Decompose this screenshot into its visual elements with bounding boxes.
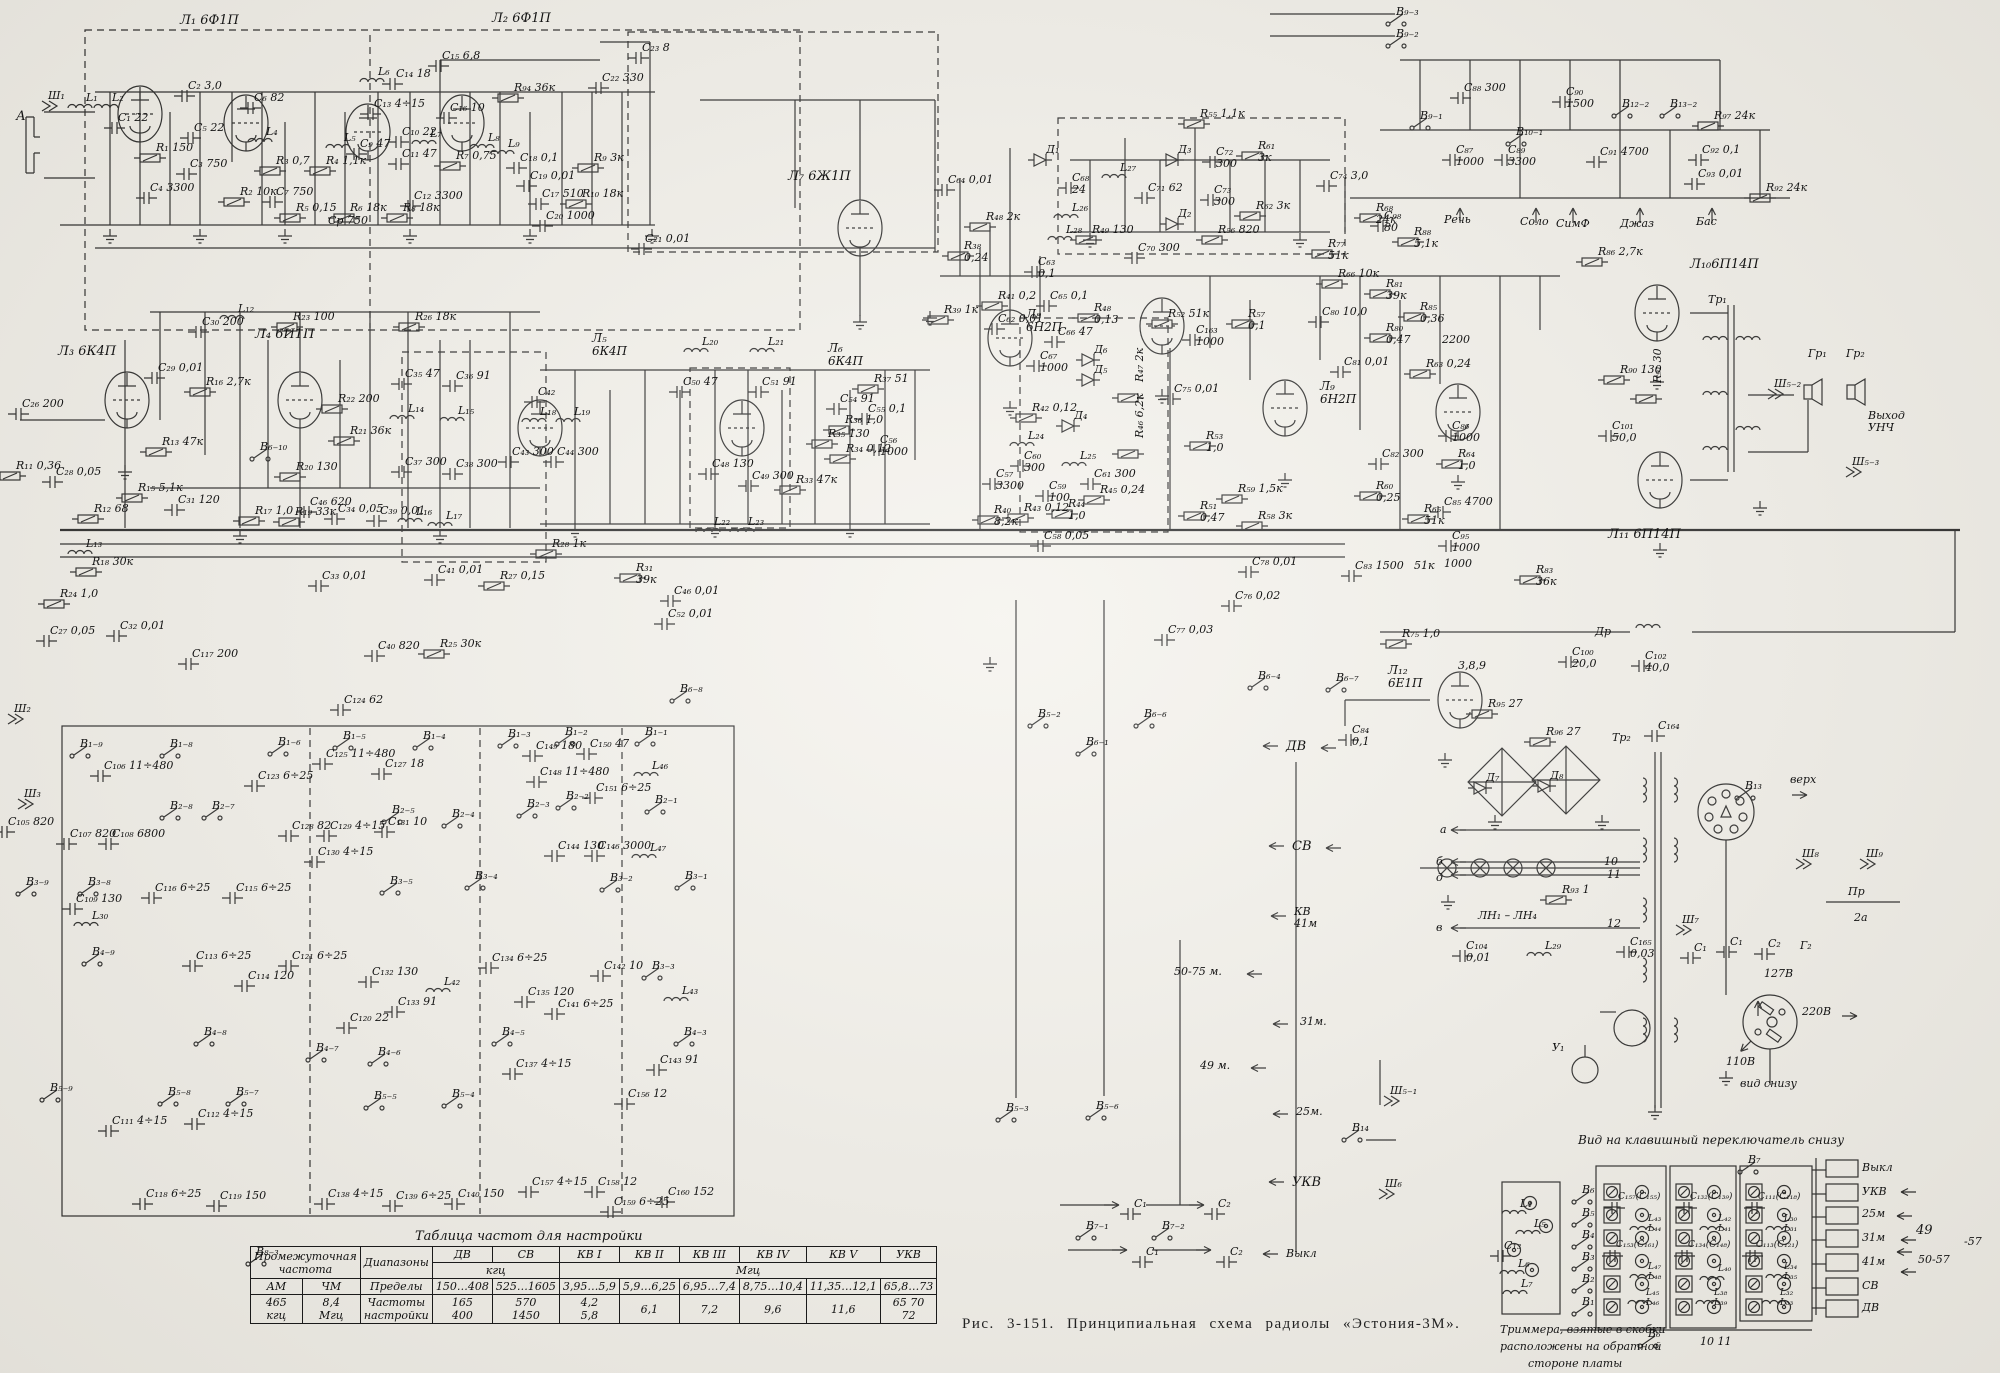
component-label: C₇ 750	[276, 186, 313, 198]
component-label: ДВ	[1862, 1302, 1879, 1314]
component-label: 11	[1607, 869, 1621, 881]
component-label: R₃₅ 130	[828, 428, 870, 440]
component-label: 2200	[1442, 334, 1470, 346]
component-label: 41м	[1862, 1256, 1885, 1268]
component-label: 10	[1604, 856, 1618, 868]
component-label: 3,8,9	[1458, 660, 1486, 672]
component-label: В₁₋₄	[423, 730, 446, 742]
component-label: C₃₇ 300	[405, 456, 447, 468]
component-label: R₂ 10к	[240, 186, 277, 198]
component-label: C₁₂₉ 4÷15	[330, 820, 385, 832]
component-label: В₂₋₄	[452, 808, 475, 820]
component-label: C₇₄ 3,0	[1330, 170, 1368, 182]
component-label: Ш₂	[14, 703, 31, 715]
band-col: ДВ	[432, 1247, 492, 1263]
component-label: C₈₂ 300	[1382, 448, 1424, 460]
component-label: Джаз	[1620, 218, 1654, 230]
component-label: L₂₄	[1028, 430, 1044, 442]
component-label: C₁₃	[1504, 1240, 1521, 1252]
component-label: Д₃	[1178, 144, 1191, 156]
component-label: C₂ 3,0	[188, 80, 222, 92]
component-label: C₂₆ 200	[22, 398, 64, 410]
component-label: C₁₂₀ 22	[350, 1012, 389, 1024]
component-label: C₁₁₄ 120	[248, 970, 294, 982]
component-label: R₄₀ 8,2к	[994, 504, 1018, 529]
component-label: Л₇ 6Ж1П	[788, 170, 851, 185]
component-label: R₆₂ 3к	[1256, 200, 1290, 212]
component-label: L₄	[1520, 1198, 1532, 1210]
band-col: КВ IV	[739, 1247, 806, 1263]
component-label: С₂	[1230, 1246, 1243, 1258]
component-label: В₉₋₂	[1396, 28, 1419, 40]
component-label: В₆₋₈	[680, 683, 703, 695]
component-label: В₃₋₄	[475, 870, 498, 882]
component-label: L₄₅ L₄₆	[1646, 1288, 1659, 1308]
component-label: С₁	[1694, 942, 1707, 954]
component-label: C₅ 22	[194, 122, 224, 134]
component-label: R₈₅ 0,36	[1420, 301, 1445, 326]
component-label: 31м	[1862, 1232, 1885, 1244]
component-label: R₆₃ 0,24	[1426, 358, 1471, 370]
component-label: L₁₃	[86, 538, 102, 550]
component-label: C₁₃₂(C₁₃₉)	[1690, 1192, 1732, 1202]
component-label: L₂₉	[1545, 940, 1561, 952]
component-label: L₄₃ L₄₄	[1648, 1214, 1661, 1234]
component-label: R₉₄ 36к	[514, 82, 555, 94]
component-label: R₁₀ 18к	[582, 188, 623, 200]
component-label: C₄₂	[538, 386, 555, 398]
component-label: в	[1436, 922, 1442, 934]
component-label: R₉ 3к	[594, 152, 624, 164]
component-label: R₆₆ 10к	[1338, 268, 1379, 280]
component-label: C₁₃ 4÷15	[374, 98, 425, 110]
component-label: В₁₋₂	[565, 726, 588, 738]
component-label: C₁₂₃ 6÷25	[258, 770, 313, 782]
band-col: КВ V	[806, 1247, 880, 1263]
component-label: C₁₃₃ 91	[398, 996, 437, 1008]
component-label: В₁₋₆	[278, 736, 301, 748]
table-header-if: Промежуточная частота	[251, 1247, 361, 1279]
component-label: L₂	[112, 92, 124, 104]
component-label: C₁₅₁ 6÷25	[596, 782, 651, 794]
component-label: В₃₋₈	[88, 876, 111, 888]
tuning-cell: 65 70 72	[880, 1295, 937, 1324]
component-label: C₁₃₄ 6÷25	[492, 952, 547, 964]
component-label: R₁₇ 1,0	[255, 505, 293, 517]
component-label: C₁₄₂ 10	[604, 960, 643, 972]
component-label: L₂₂	[714, 516, 730, 528]
component-label: Л₅ 6К4П	[592, 332, 627, 359]
component-label: В₄₋₆	[378, 1046, 401, 1058]
component-label: В₁₂₋₂	[1622, 98, 1649, 110]
component-label: C₃₆ 91	[456, 370, 491, 382]
component-label: C₁₀₉ 130	[76, 893, 122, 905]
component-label: В₁	[1582, 1296, 1595, 1308]
component-label: R₂₆ 18к	[415, 311, 456, 323]
component-label: C₁₁ 47	[402, 148, 437, 160]
component-label: Л₁₀6П14П	[1690, 258, 1759, 273]
tuning-cell: 7,2	[679, 1295, 739, 1324]
component-label: C₁₂₇ 18	[385, 758, 424, 770]
component-label: R₃₉ 1к	[944, 304, 978, 316]
component-label: R₅₈ 3к	[1258, 510, 1292, 522]
component-label: C₆₂ 0,01	[998, 313, 1043, 325]
tuning-cell: 9,6	[739, 1295, 806, 1324]
component-label: В₉₋₃	[1396, 6, 1419, 18]
component-label: В₅	[1582, 1207, 1595, 1219]
component-label: С₂	[1768, 938, 1781, 950]
component-label: верх	[1790, 774, 1816, 786]
component-label: R₃₇ 51	[874, 373, 909, 385]
component-label: R₉₂ 24к	[1766, 182, 1807, 194]
component-label: C₆₄ 0,01	[948, 174, 993, 186]
component-label: C₉₃ 0,01	[1698, 168, 1743, 180]
component-label: Соло	[1520, 216, 1549, 228]
component-label: C₁₄₈ 11÷480	[540, 766, 609, 778]
component-label: R₅₁ 0,47	[1200, 500, 1225, 525]
component-label: В₁₀₋₁	[1516, 126, 1543, 138]
component-label: С₁	[1730, 936, 1743, 948]
component-label: В₄₋₈	[204, 1026, 227, 1038]
component-label: R₈₃ 36к	[1536, 564, 1557, 589]
component-label: R₈₀ 0,47	[1386, 322, 1411, 347]
component-label: L₃₄ L₃₅	[1784, 1262, 1797, 1282]
component-label: R₈₁ 39к	[1386, 278, 1407, 303]
component-label: Ш₈	[1802, 848, 1819, 860]
component-label: R₅ 0,15	[296, 202, 337, 214]
component-label: C₁₇ 510	[542, 188, 584, 200]
component-label: В₅₋₈	[168, 1086, 191, 1098]
component-label: L₄	[266, 126, 278, 138]
component-label: C₁₀₄ 0,01	[1466, 940, 1491, 965]
component-label: C₄₄ 300	[557, 446, 599, 458]
component-label: L₇	[430, 128, 442, 140]
component-label: R₅₆ 820	[1218, 224, 1260, 236]
component-label: R₄₄ 1,0	[1068, 498, 1086, 523]
component-label: В₃₋₁	[685, 870, 708, 882]
component-label: В₁₋₉	[80, 738, 103, 750]
component-label: C₁₁₅ 6÷25	[236, 882, 291, 894]
component-label: В₉₋₁	[1420, 110, 1443, 122]
component-label: R₅₃ 1,0	[1206, 430, 1224, 455]
component-label: C₅₅ 0,1	[868, 403, 906, 415]
component-label: C₁₀₁ 50,0	[1612, 420, 1637, 445]
component-label: Гр₂	[1846, 348, 1865, 360]
component-label: Таблица частот для настройки	[415, 1230, 643, 1245]
component-label: C₁₆₄	[1658, 720, 1680, 732]
component-label: C₅₁ 91	[762, 376, 797, 388]
component-label: C₇₁ 62	[1148, 182, 1183, 194]
component-label: 31м.	[1300, 1016, 1327, 1028]
component-label: Ш₁	[48, 90, 65, 102]
band-col: УКВ	[880, 1247, 937, 1263]
component-label: C₁₃₂ 130	[372, 966, 418, 978]
component-label: Вид на клавишный переключатель снизу	[1578, 1134, 1844, 1147]
component-label: C₁₀₂ 40,0	[1645, 650, 1670, 675]
component-label: C₁₀₀ 20,0	[1572, 646, 1597, 671]
tuning-cell: 165 400	[432, 1295, 492, 1324]
if-fm-value: 8,4 Мгц	[302, 1295, 360, 1324]
component-label: C₁₆₃ 1000	[1196, 324, 1224, 349]
component-label: C₆₁ 300	[1094, 468, 1136, 480]
component-label: C₁₅₈ 12	[598, 1176, 637, 1188]
component-label: L₂₃	[748, 516, 764, 528]
component-label: С₁	[1146, 1246, 1159, 1258]
component-label: L₆	[378, 66, 390, 78]
tuning-cell: 570 1450	[492, 1295, 559, 1324]
component-label: C₈₄ 0,1	[1352, 724, 1370, 749]
component-label: R₈ 18к	[403, 202, 440, 214]
table-header-bands: Диапазоны	[360, 1247, 432, 1279]
component-label: C₄₀ 820	[378, 640, 420, 652]
component-label: C₁₃₉ 6÷25	[396, 1190, 451, 1202]
limit-cell: 3,95…5,9	[559, 1279, 619, 1295]
component-label: В₃₋₉	[26, 876, 49, 888]
component-label: C₉ 47	[360, 138, 390, 150]
component-label: R₉₇ 24к	[1714, 110, 1755, 122]
component-label: С₂	[1218, 1198, 1231, 1210]
component-label: C₁₄ 18	[396, 68, 431, 80]
component-label: R₂₇ 0,15	[500, 570, 545, 582]
component-label: В₇₋₂	[1162, 1220, 1185, 1232]
component-label: C₄₁ 0,01	[438, 564, 483, 576]
component-label: C₃ 750	[190, 158, 227, 170]
component-label: Ш₅₋₁	[1390, 1085, 1417, 1097]
component-label: 51к	[1414, 560, 1435, 572]
component-label: C₁₉ 0,01	[530, 170, 575, 182]
component-label: Д₂	[1178, 208, 1191, 220]
component-label: В₄₋₅	[502, 1026, 525, 1038]
limit-cell: 11,35…12,1	[806, 1279, 880, 1295]
component-label: L₁₉	[574, 406, 590, 418]
component-label: R₄₈ 0,13	[1094, 302, 1119, 327]
component-label: Бас	[1696, 216, 1717, 228]
component-label: R₆₀ 0,25	[1376, 480, 1401, 505]
component-label: L₄₇	[650, 842, 666, 854]
if-am: АМ	[251, 1279, 303, 1295]
component-label: L₇	[1521, 1278, 1533, 1290]
component-label: C₂₈ 0,05	[56, 466, 101, 478]
component-label: Ш₉	[1866, 848, 1883, 860]
component-label: Выкл	[1862, 1162, 1893, 1174]
component-label: C₁₂₁ 6÷25	[292, 950, 347, 962]
component-label: C₁₁₉ 150	[220, 1190, 266, 1202]
component-label: C₄₃ 300	[512, 446, 554, 458]
component-label: C₆₅ 0,1	[1050, 290, 1088, 302]
component-label: R₉₃ 1	[1562, 884, 1590, 896]
component-label: В₆₋₁	[1086, 736, 1109, 748]
component-label: 49	[1916, 1224, 1933, 1239]
component-label: Г₂	[1800, 940, 1812, 952]
component-label: 220В	[1802, 1006, 1831, 1018]
component-label: 12	[1607, 918, 1621, 930]
component-label: Ш₅₋₃	[1852, 456, 1879, 468]
component-label: Л₃ 6К4П	[58, 345, 116, 360]
component-label: C₁₄₀ 150	[458, 1188, 504, 1200]
component-label: C₁₅₇(C₁₅₅)	[1618, 1192, 1660, 1202]
component-label: R₅₂ 51к	[1168, 308, 1209, 320]
component-label: В₂₋₂	[566, 790, 589, 802]
component-label: C₁₀₈ 6800	[112, 828, 165, 840]
if-fm: ЧМ	[302, 1279, 360, 1295]
component-label: Д₆	[1094, 344, 1107, 356]
component-label: R₄₁ 0,2	[998, 290, 1036, 302]
component-label: В₂₋₇	[212, 800, 235, 812]
component-label: C₈₃ 1500	[1355, 560, 1404, 572]
component-label: R₅₇ 0,1	[1248, 308, 1266, 333]
component-label: R₉₆ 27	[1546, 726, 1581, 738]
component-label: В₅₋₂	[1038, 708, 1061, 720]
component-label: R₁ 150	[156, 142, 193, 154]
component-label: C₅₈ 0,05	[1044, 530, 1089, 542]
band-col: СВ	[492, 1247, 559, 1263]
component-label: C₂₇ 0,05	[50, 625, 95, 637]
component-label: В₂₋₁	[655, 794, 678, 806]
component-label: В₃₋₂	[610, 872, 633, 884]
component-label: L₁₅	[458, 405, 474, 417]
component-label: СВ	[1862, 1280, 1879, 1292]
component-label: L₄₀	[1718, 1264, 1731, 1274]
component-label: C₈₁ 0,01	[1344, 356, 1389, 368]
component-label: C₄₈ 130	[712, 458, 754, 470]
component-label: R₃₁ 39к	[636, 562, 657, 587]
component-label: R₅₉ 1,5к	[1238, 483, 1283, 495]
component-label: C₆₆ 47	[1058, 326, 1093, 338]
component-label: C₅₆ 1000	[880, 434, 908, 459]
component-label: R₄₂ 0,12	[1032, 402, 1077, 414]
tuning-cell: 4,2 5,8	[559, 1295, 619, 1324]
component-label: R₇₇ 51к	[1328, 238, 1349, 263]
component-label: R₆ 18к	[350, 202, 387, 214]
component-label: Ср 750	[328, 215, 368, 227]
component-label: C₂₁ 0,01	[645, 233, 690, 245]
component-label: C₇₈ 0,01	[1252, 556, 1297, 568]
component-label: C₁₁₇ 200	[192, 648, 238, 660]
component-label: В₅₋₄	[452, 1088, 475, 1100]
component-label: C₁₆₅ 0,03	[1630, 936, 1655, 961]
component-label: R₂₃ 100	[293, 311, 335, 323]
component-label: А	[16, 110, 26, 125]
component-label: R₂₈ 1к	[552, 538, 586, 550]
component-label: C₃₀ 200	[202, 316, 244, 328]
component-label: 49 м.	[1200, 1060, 1230, 1072]
component-label: C₁₅ 6,8	[442, 50, 480, 62]
component-label: Д₅	[1094, 364, 1107, 376]
component-label: C₈₅ 4700	[1444, 496, 1493, 508]
component-label: В₄₋₇	[316, 1042, 339, 1054]
component-label: 2а	[1854, 912, 1868, 924]
component-label: L₄₇ L₄₈	[1648, 1262, 1661, 1282]
component-label: R₄₈ 2к	[986, 211, 1020, 223]
component-label: В₅₋₆	[1096, 1100, 1119, 1112]
component-label: Тр₂	[1612, 732, 1631, 744]
component-label: C₁₁₃ 6÷25	[196, 950, 251, 962]
component-label: C₈₉ 3300	[1508, 144, 1536, 169]
component-label: 50-57	[1918, 1254, 1950, 1266]
component-label: C₉₂ 0,1	[1702, 144, 1740, 156]
component-label: R₈₆ 2,7к	[1598, 246, 1643, 258]
component-label: C₄ 3300	[150, 182, 194, 194]
component-label: C₆₀ 300	[1024, 450, 1045, 475]
component-label: д	[1436, 872, 1443, 884]
component-label: В₁₋₁	[645, 726, 668, 738]
component-label: C₇₇ 0,03	[1168, 624, 1213, 636]
component-label: R₁₈ 30к	[92, 556, 133, 568]
component-label: L₂₁	[768, 336, 784, 348]
component-label: R₁₃ 47к	[162, 436, 203, 448]
component-label: R₃₈ 0,24	[964, 240, 989, 265]
component-label: C₁₀₅ 820	[8, 816, 54, 828]
band-col: КВ I	[559, 1247, 619, 1263]
component-label: В₁₃₋₂	[1670, 98, 1697, 110]
component-label: C₃₈ 300	[456, 458, 498, 470]
component-label: В₅₋₇	[236, 1086, 259, 1098]
component-label: C₆₈ 24	[1072, 172, 1089, 197]
row-limits-label: Пределы	[360, 1279, 432, 1295]
component-label: L₂₅	[1080, 450, 1096, 462]
component-label: C₉₈ 80	[1384, 210, 1401, 235]
component-label: C₈₆ 1000	[1452, 420, 1480, 445]
component-label: Д₁	[1046, 144, 1059, 156]
component-label: R₃₃ 47к	[796, 474, 837, 486]
component-label: R₉₅ 27	[1488, 698, 1523, 710]
tuning-cell: 6,1	[619, 1295, 679, 1324]
component-label: C₁₁₈ 6÷25	[146, 1188, 201, 1200]
component-label: R₁₂ 68	[94, 503, 129, 515]
component-label: Д₈	[1550, 770, 1563, 782]
schematic-page: АШ₁L₁L₂C₁ 22C₂ 3,0C₅ 22R₁ 150C₃ 750C₄ 33…	[0, 0, 2000, 1373]
component-label: Ш₃	[24, 788, 41, 800]
component-label: L₃₈ L₃₉	[1714, 1288, 1727, 1308]
component-label: В₁₋₈	[170, 738, 193, 750]
component-label: C₁₆₀ 152	[668, 1186, 714, 1198]
component-label: C₂₃ 8	[642, 42, 670, 54]
component-label: C₁₅₀ 47	[590, 738, 629, 750]
component-label: В₅₋₅	[374, 1090, 397, 1102]
component-label: Л₆ 6К4П	[828, 342, 863, 369]
component-label: КВ 41м	[1294, 906, 1317, 931]
component-label: R₂₅ 30к	[440, 638, 481, 650]
component-label: расположены на обратной	[1500, 1341, 1661, 1353]
component-label: C₁ 22	[118, 112, 148, 124]
tuning-frequency-table: Промежуточная частота Диапазоны ДВ СВ КВ…	[250, 1246, 937, 1324]
component-label: 50-75 м.	[1174, 966, 1222, 978]
component-label: R₁₆ 2,7к	[206, 376, 251, 388]
component-label: R₅₅ 1,1к	[1200, 108, 1245, 120]
component-label: C₅₂ 0,01	[668, 608, 713, 620]
component-label: R₄₆ 6,2к	[1134, 393, 1146, 438]
component-label: C₅₇ 3300	[996, 468, 1024, 493]
component-label: C₁₄₁ 6÷25	[558, 998, 613, 1010]
limit-cell: 8,75…10,4	[739, 1279, 806, 1295]
component-label: C₁₅₆ 12	[628, 1088, 667, 1100]
component-label: C₁₈ 0,1	[520, 152, 558, 164]
component-label: C₇₃ 300	[1214, 184, 1235, 209]
component-label: R₆₁ 3к	[1258, 140, 1275, 165]
component-label: В₂	[1582, 1273, 1595, 1285]
component-label: В₄₋₃	[684, 1026, 707, 1038]
component-label: C₄₆ 620	[310, 496, 352, 508]
component-label: L₂₆	[1072, 202, 1088, 214]
component-label: У₁	[1552, 1042, 1564, 1054]
component-label: R₇ 0,75	[456, 150, 497, 162]
component-label: C₁₄₉ 180	[536, 740, 582, 752]
band-col: КВ III	[679, 1247, 739, 1263]
component-label: В₂₋₈	[170, 800, 193, 812]
component-label: C₃₃ 0,01	[322, 570, 367, 582]
component-label: В₆	[1582, 1184, 1595, 1196]
component-label: R₄₅ 0,24	[1100, 484, 1145, 496]
